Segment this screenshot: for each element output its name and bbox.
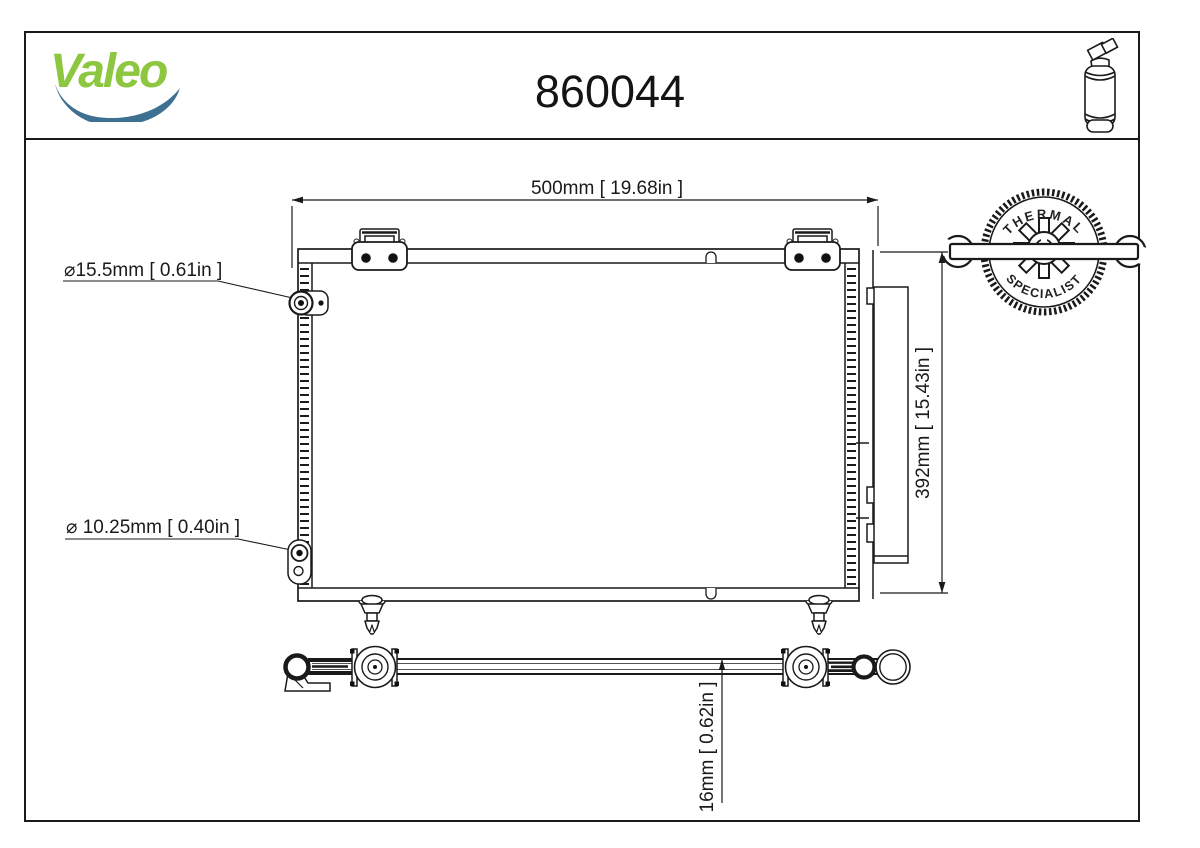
side-mount-right [781, 647, 830, 688]
dimension-depth [719, 658, 725, 803]
dim-bottom-port-label: ⌀ 10.25mm [ 0.40in ] [66, 517, 240, 538]
dim-depth-label: 16mm [ 0.62in ] [697, 682, 718, 813]
bottom-peg-left [359, 596, 385, 635]
side-view: 16mm [ 0.62in ] [285, 647, 910, 813]
side-right-port [854, 657, 875, 678]
top-bracket-right [785, 229, 840, 270]
leader-line-bottom [238, 539, 296, 551]
dim-width-label: 500mm [ 19.68in ] [531, 178, 683, 199]
leader-line-top [218, 281, 297, 299]
bottom-port [65, 539, 311, 584]
side-mount-left [350, 647, 399, 688]
dim-height-label: 392mm [ 15.43in ] [913, 347, 934, 499]
front-view: 500mm [ 19.68in ] [63, 178, 948, 634]
drier-end-view [876, 650, 910, 684]
top-bracket-left [352, 229, 407, 270]
condenser-body [298, 249, 859, 601]
condenser-drawing: 500mm [ 19.68in ] [0, 0, 1200, 848]
bottom-peg-right [806, 596, 832, 635]
dim-top-port-label: ⌀15.5mm [ 0.61in ] [64, 260, 222, 281]
side-left-port [286, 656, 309, 679]
technical-drawing-sheet: Valeo 860044 [0, 0, 1200, 848]
top-port [63, 281, 328, 315]
